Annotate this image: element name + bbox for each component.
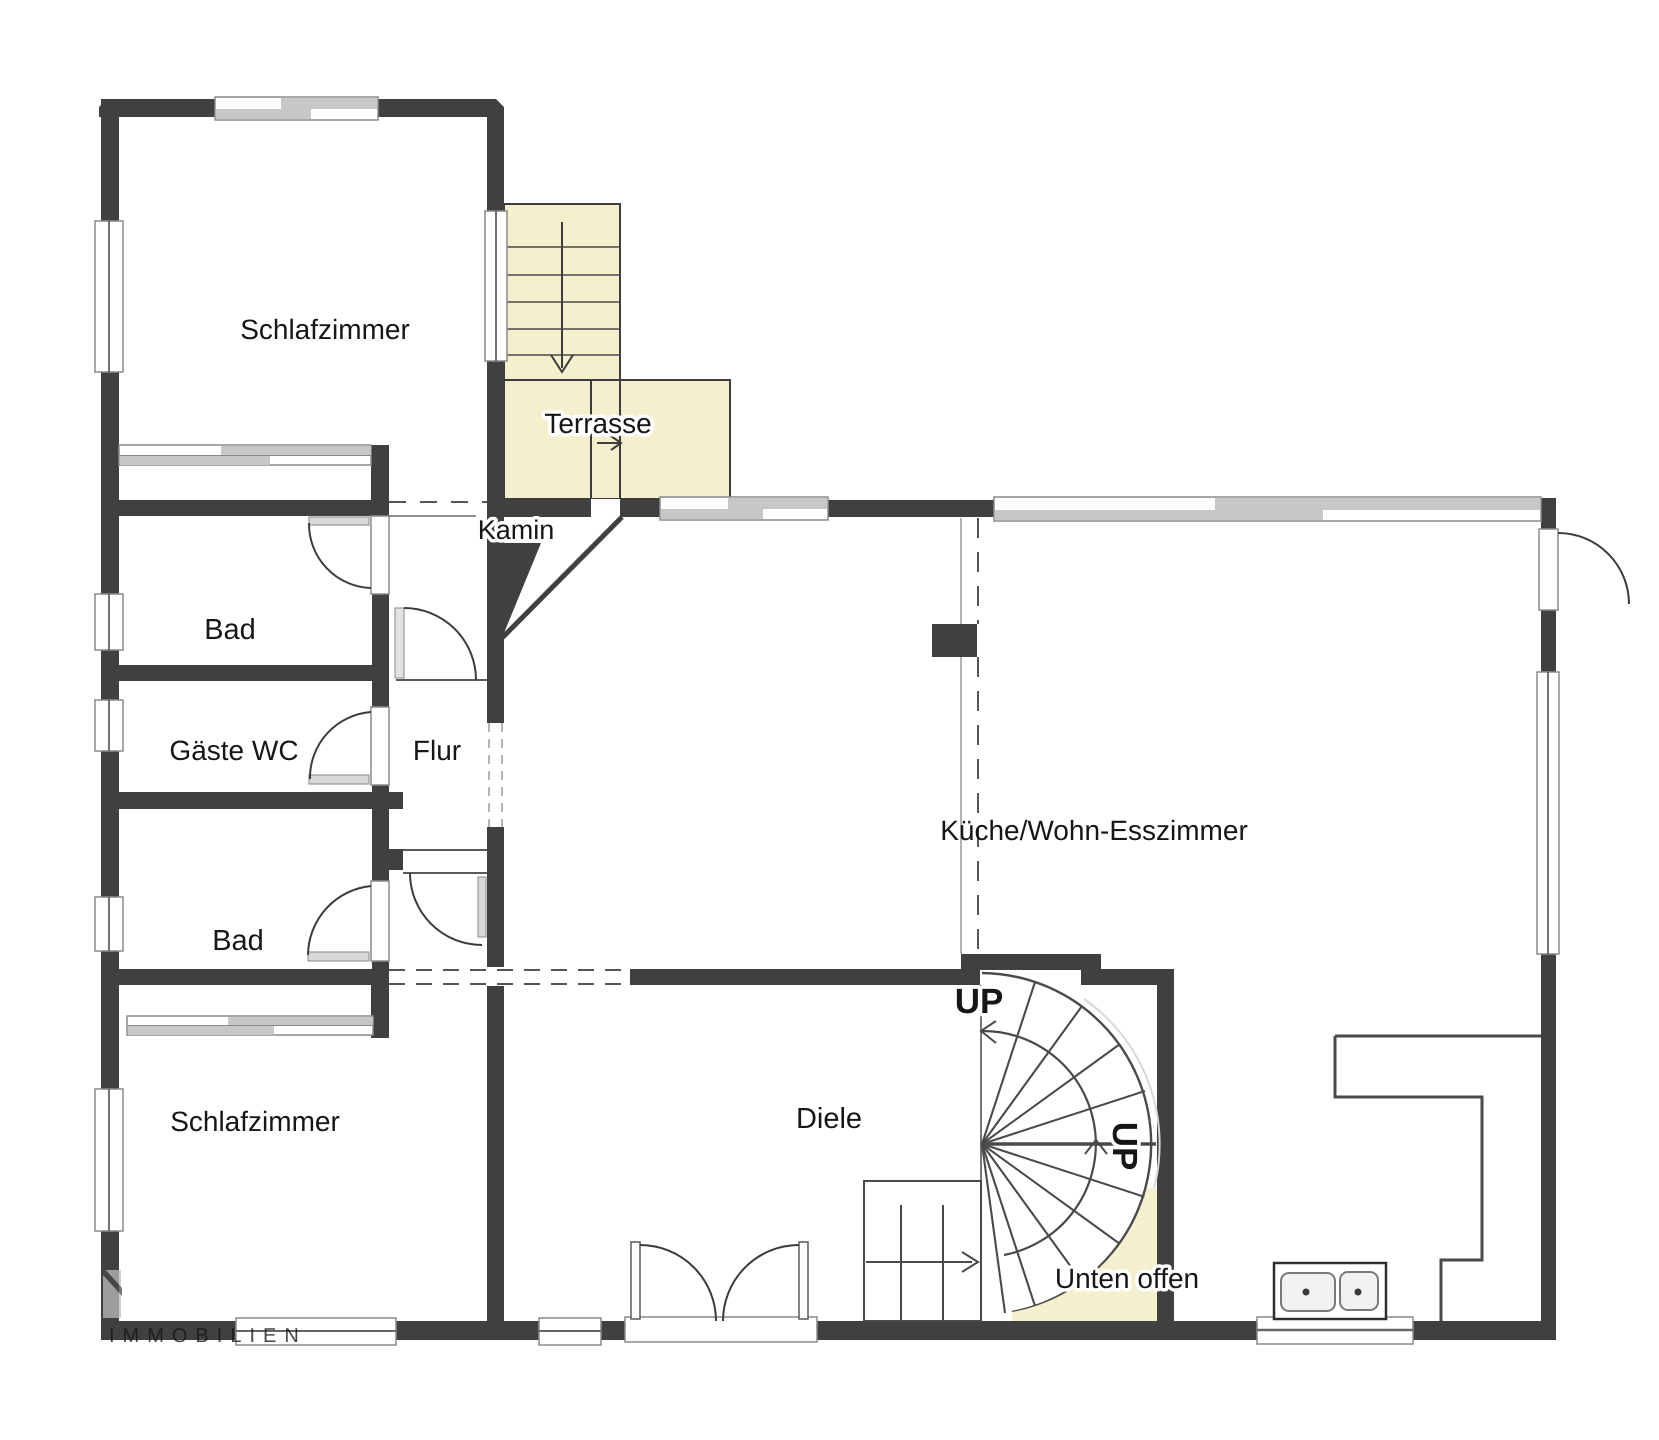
svg-text:Küche/Wohn-Esszimmer: Küche/Wohn-Esszimmer: [940, 815, 1248, 846]
svg-text:UP: UP: [1105, 1122, 1144, 1171]
svg-text:Kamin: Kamin: [478, 515, 555, 545]
svg-text:Flur: Flur: [413, 735, 461, 766]
svg-text:Gäste WC: Gäste WC: [169, 735, 298, 766]
svg-text:Bad: Bad: [212, 925, 264, 957]
svg-text:Diele: Diele: [796, 1103, 862, 1135]
svg-text:Terrasse: Terrasse: [544, 408, 651, 439]
svg-text:UP: UP: [955, 982, 1004, 1021]
svg-text:Schlafzimmer: Schlafzimmer: [170, 1106, 340, 1137]
svg-text:Schlafzimmer: Schlafzimmer: [240, 314, 410, 345]
svg-text:Bad: Bad: [204, 614, 256, 646]
svg-text:IMMOBILIEN: IMMOBILIEN: [109, 1325, 307, 1347]
svg-text:Unten offen: Unten offen: [1055, 1263, 1199, 1294]
